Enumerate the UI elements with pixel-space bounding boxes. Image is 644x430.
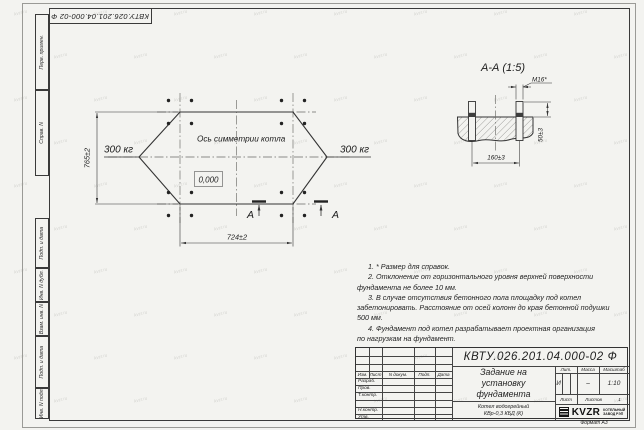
company-logo-text: KVZR [572, 407, 600, 418]
drawing-sheet: kvzr.rukvzr.rukvzr.rukvzr.rukvzr.rukvzr.… [0, 0, 644, 430]
note-line: 4. Фундамент под котел разрабатывает про… [357, 324, 631, 334]
tb-sheets-cell: Листов 1 [577, 394, 629, 404]
title-block: Изм. Лист N докум. Подп. Дата Разраб. Пр… [355, 347, 628, 419]
note-line: фундамента не более 10 мм. [357, 283, 631, 293]
tb-product-name: Котел водогрейный КВр-0,3 КБД (К) [452, 401, 555, 420]
tb-name-line: фундамента [476, 389, 530, 400]
dimension-arrows [96, 86, 549, 244]
plan-view: Ось симметрии котла 300 кг 300 кг 0,000 … [83, 93, 372, 247]
section-letter-right: А [331, 209, 339, 221]
tb-lit-label: Лит. [555, 366, 577, 373]
tb-scale-value: 1:10 [599, 373, 629, 394]
dim-height-label: 765±2 [83, 148, 92, 168]
load-label-left: 300 кг [104, 145, 133, 156]
plan-foundation-outline [139, 112, 327, 204]
company-logo-icon [559, 407, 569, 417]
tb-col-izm: Изм. [356, 371, 369, 378]
dim-width-label: 724±2 [227, 233, 247, 242]
tb-drawing-name: Задание на установку фундамента [452, 366, 555, 401]
tb-row-tkontr: Т.контр. [356, 392, 383, 399]
dim-bolt-lines [508, 83, 552, 100]
dim-bolt-label: М16* [532, 77, 547, 84]
dim-spacing-label: 160±3 [487, 155, 505, 162]
format-note: Формат А3 [560, 420, 628, 426]
dim-protrusion-label: 50±3 [538, 128, 545, 142]
tb-col-dokum: N докум. [382, 371, 414, 378]
tb-name-line: установку [482, 378, 526, 389]
note-line: 500 мм. [357, 313, 631, 323]
tb-sheets-label: Листов [585, 397, 602, 402]
tb-col-list: Лист [369, 371, 382, 378]
tb-mass-label: Масса [577, 366, 599, 373]
tb-row-prov: Пров. [356, 385, 383, 392]
tb-scale-label: Масштаб [599, 366, 629, 373]
section-letter-left: А [246, 209, 254, 221]
level-mark-value: 0,000 [198, 176, 219, 185]
note-line: 3. В случае отсутствия бетонного пола пл… [357, 293, 631, 303]
note-line: забетонировать. Расстояние от осей колон… [357, 303, 631, 313]
tb-col-data: Дата [435, 371, 452, 378]
tb-sheets-value: 1 [618, 397, 621, 402]
load-label-right: 300 кг [340, 145, 369, 156]
company-name: КОТЕЛЬНЫЙ ЗАВОД РЭП [603, 408, 625, 416]
section-view: А-А (1:5) М16* [458, 62, 553, 167]
tb-row-razrab: Разраб. [356, 378, 383, 385]
axis-symmetry-label: Ось симметрии котла [197, 135, 286, 144]
tb-lit-value: И [555, 373, 562, 394]
tb-product-line: КВр-0,3 КБД (К) [484, 411, 523, 418]
company-name-line: ЗАВОД РЭП [603, 412, 625, 416]
tb-col-podp: Подп. [414, 371, 435, 378]
tb-doc-number: КВТУ.026.201.04.000-02 Ф [452, 348, 629, 366]
tb-company-cell: KVZR КОТЕЛЬНЫЙ ЗАВОД РЭП [555, 404, 629, 420]
dim-protrusion-lines [524, 102, 551, 117]
note-line: 2. Отклонение от горизонтального уровня … [357, 272, 631, 282]
tb-row-utv: Утв. [356, 414, 383, 421]
plan-dim-height-lines [95, 112, 178, 204]
section-title: А-А (1:5) [480, 62, 525, 74]
note-line: 1. * Размер для справок. [357, 262, 631, 272]
tb-row-nkontr: Н.контр. [356, 407, 383, 414]
tb-name-line: Задание на [480, 367, 527, 378]
tb-sheet-label: Лист [555, 394, 577, 404]
note-line: по нагрузкам на фундамент. [357, 334, 631, 344]
tb-product-line: Котел водогрейный [478, 404, 529, 411]
technical-notes: 1. * Размер для справок. 2. Отклонение о… [357, 262, 631, 344]
tb-mass-value: – [577, 373, 599, 394]
